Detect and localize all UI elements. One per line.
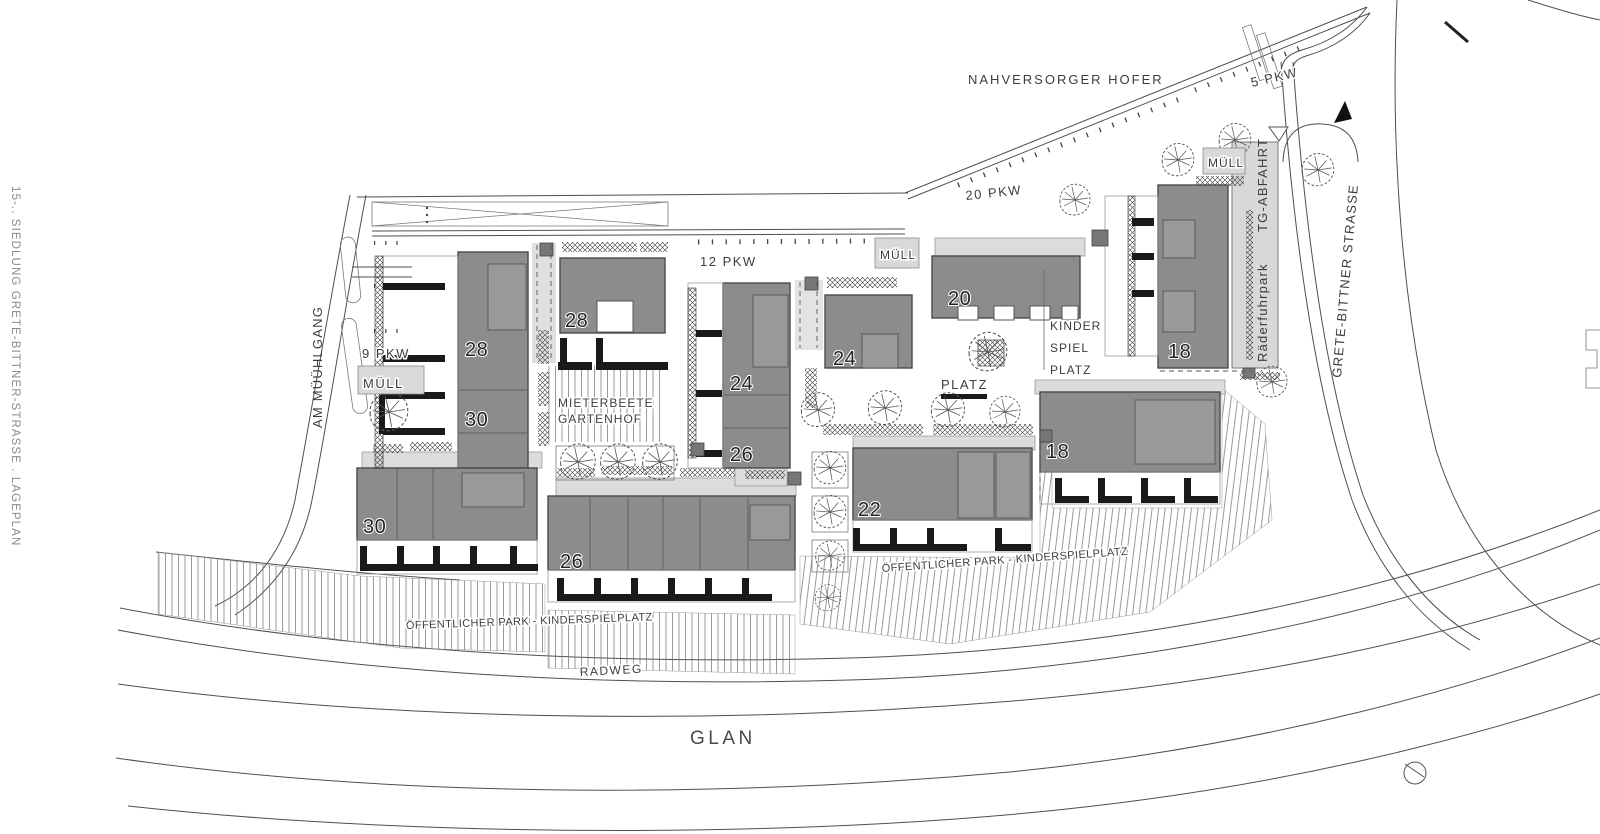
label-platz: PLATZ [941, 377, 988, 392]
drawing-side-title: 15-.. SIEDLUNG GRETE-BITTNER-STRASSE . L… [9, 186, 21, 546]
number-30-row: 30 [363, 516, 386, 538]
label-raederfuhrpark: Räderfuhrpark [1255, 263, 1270, 362]
number-20: 20 [948, 288, 971, 310]
label-am-muehlgang: AM MÜÜHLGANG [310, 306, 325, 428]
neighbor-building-outline [1586, 330, 1600, 388]
number-26-row: 26 [560, 551, 583, 573]
number-22: 22 [858, 499, 881, 521]
curb-segment [1445, 22, 1468, 42]
label-glan: GLAN [690, 728, 756, 749]
label-platz2: PLATZ [1050, 363, 1091, 377]
site-plan-canvas: NAHVERSORGER HOFER 5 PKW 20 PKW 12 PKW 9… [0, 0, 1600, 834]
north-symbol [1404, 762, 1426, 784]
parking-ticks-12 [698, 241, 872, 242]
number-28-slab: 28 [465, 339, 488, 361]
number-18-top: 18 [1168, 341, 1191, 363]
label-kinder: KINDER [1050, 319, 1101, 333]
number-24-hof: 24 [833, 348, 856, 370]
label-tg-abfahrt: TG-ABFAHRT [1255, 138, 1270, 232]
label-mieterbeete: MIETERBEETE [558, 396, 654, 410]
label-gartenhof: GARTENHOF [558, 412, 642, 426]
number-30-slab: 30 [465, 409, 488, 431]
number-26-slab: 26 [730, 444, 753, 466]
label-12pkw: 12 PKW [700, 254, 757, 269]
label-grete-bittner-strasse: GRETE-BITTNER STRASSE [1329, 183, 1361, 378]
ramp-triangle [1269, 127, 1288, 141]
street-grete-bittner [1281, 0, 1600, 650]
label-nahversorger: NAHVERSORGER HOFER [968, 72, 1164, 87]
number-18-mid: 18 [1046, 441, 1069, 463]
entry-arrow [1334, 101, 1352, 123]
number-24-slab: 24 [730, 373, 753, 395]
site-plan-page: NAHVERSORGER HOFER 5 PKW 20 PKW 12 PKW 9… [0, 0, 1600, 834]
label-muell-left: MÜLL [363, 376, 404, 391]
label-spiel: SPIEL [1050, 341, 1089, 355]
label-9pkw: 9 PKW [362, 346, 410, 361]
label-muell-top: MÜLL [1208, 156, 1244, 170]
platz-underline [941, 394, 987, 399]
label-radweg: RADWEG [579, 662, 643, 679]
traffic-island [340, 236, 362, 303]
label-20pkw: 20 PKW [965, 182, 1023, 203]
number-28-hof: 28 [565, 310, 588, 332]
label-muell-center: MÜLL [880, 248, 916, 262]
label-5pkw: 5 PKW [1249, 65, 1299, 90]
